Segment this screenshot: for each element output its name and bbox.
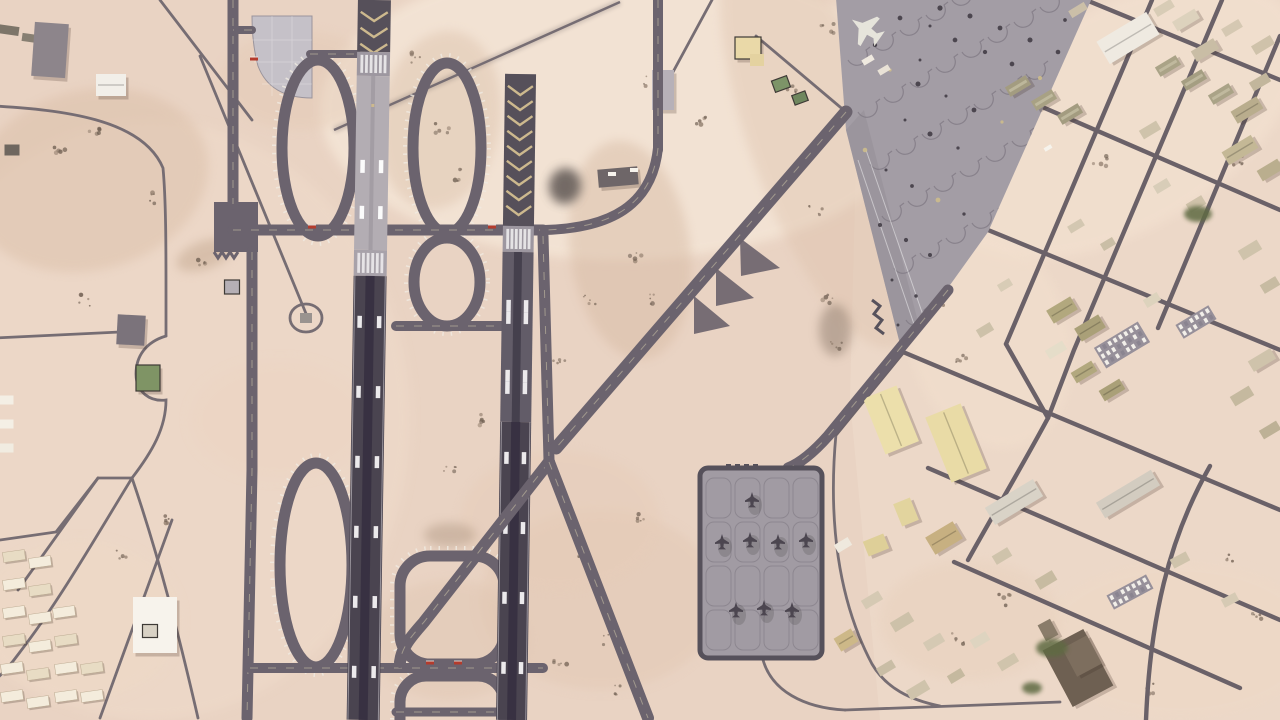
fighter-apron <box>700 464 822 658</box>
satellite-image <box>0 0 1280 720</box>
satellite-view-canvas <box>0 0 1280 720</box>
fighter-apron-surface <box>700 468 822 658</box>
